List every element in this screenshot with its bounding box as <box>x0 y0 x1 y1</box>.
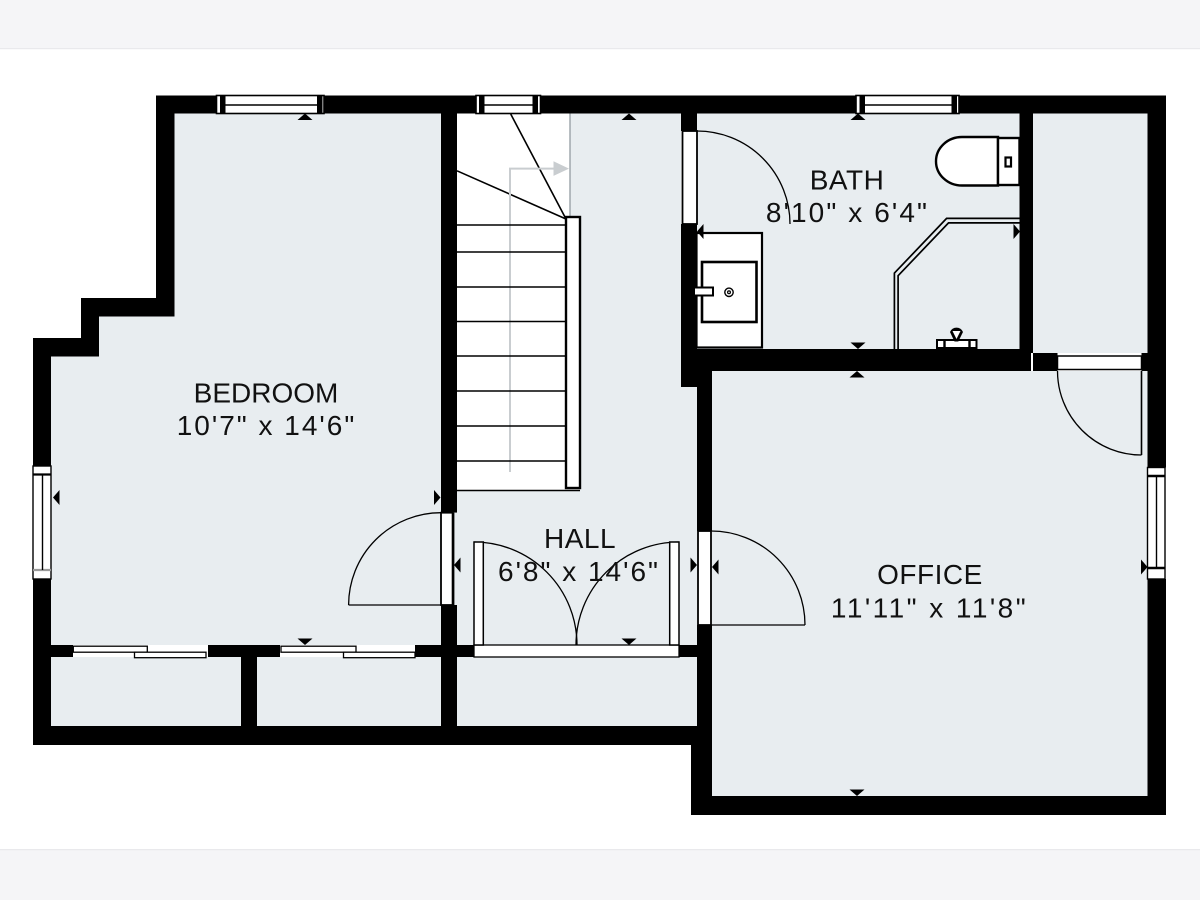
svg-text:HALL: HALL <box>544 523 616 554</box>
svg-text:11'11" x 11'8": 11'11" x 11'8" <box>831 593 1028 624</box>
svg-text:BEDROOM: BEDROOM <box>194 378 339 409</box>
svg-text:10'7" x 14'6": 10'7" x 14'6" <box>177 410 357 441</box>
svg-text:OFFICE: OFFICE <box>877 559 983 590</box>
svg-text:8'10" x 6'4": 8'10" x 6'4" <box>766 197 929 228</box>
svg-text:6'8" x 14'6": 6'8" x 14'6" <box>498 556 660 587</box>
svg-text:BATH: BATH <box>810 165 885 196</box>
